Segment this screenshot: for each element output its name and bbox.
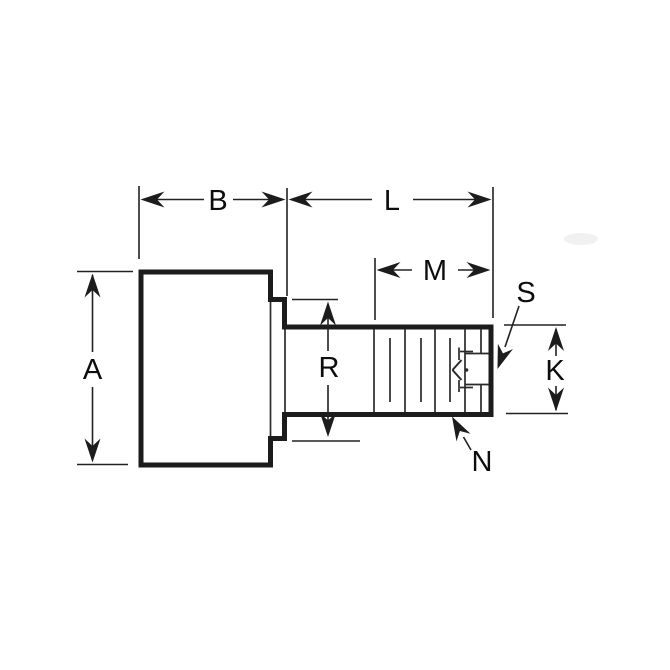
dim-label-a: A (83, 354, 103, 386)
drill-point-chevron (453, 360, 462, 370)
part-outline (141, 272, 491, 465)
dim-label-s: S (516, 277, 535, 309)
scan-smudge (564, 233, 598, 245)
dim-label-l: L (384, 185, 400, 217)
dim-label-k: K (545, 355, 565, 387)
dim-label-b: B (208, 185, 227, 217)
thread-lines (374, 330, 465, 413)
part-profile (141, 272, 491, 465)
dim-label-n: N (472, 446, 493, 478)
centerline-dot (465, 368, 469, 372)
drawing-canvas: A B L M R K S N (0, 0, 670, 670)
drill-point-chevron (453, 370, 462, 380)
dim-label-r: R (319, 352, 340, 384)
end-socket-detail (453, 330, 489, 413)
leader-N (445, 413, 471, 450)
dim-label-m: M (423, 255, 447, 287)
dimension-diagram: A B L M R K S N (0, 0, 670, 670)
leader-line (464, 437, 472, 450)
leader-S (490, 306, 519, 372)
leader-line (505, 306, 519, 347)
